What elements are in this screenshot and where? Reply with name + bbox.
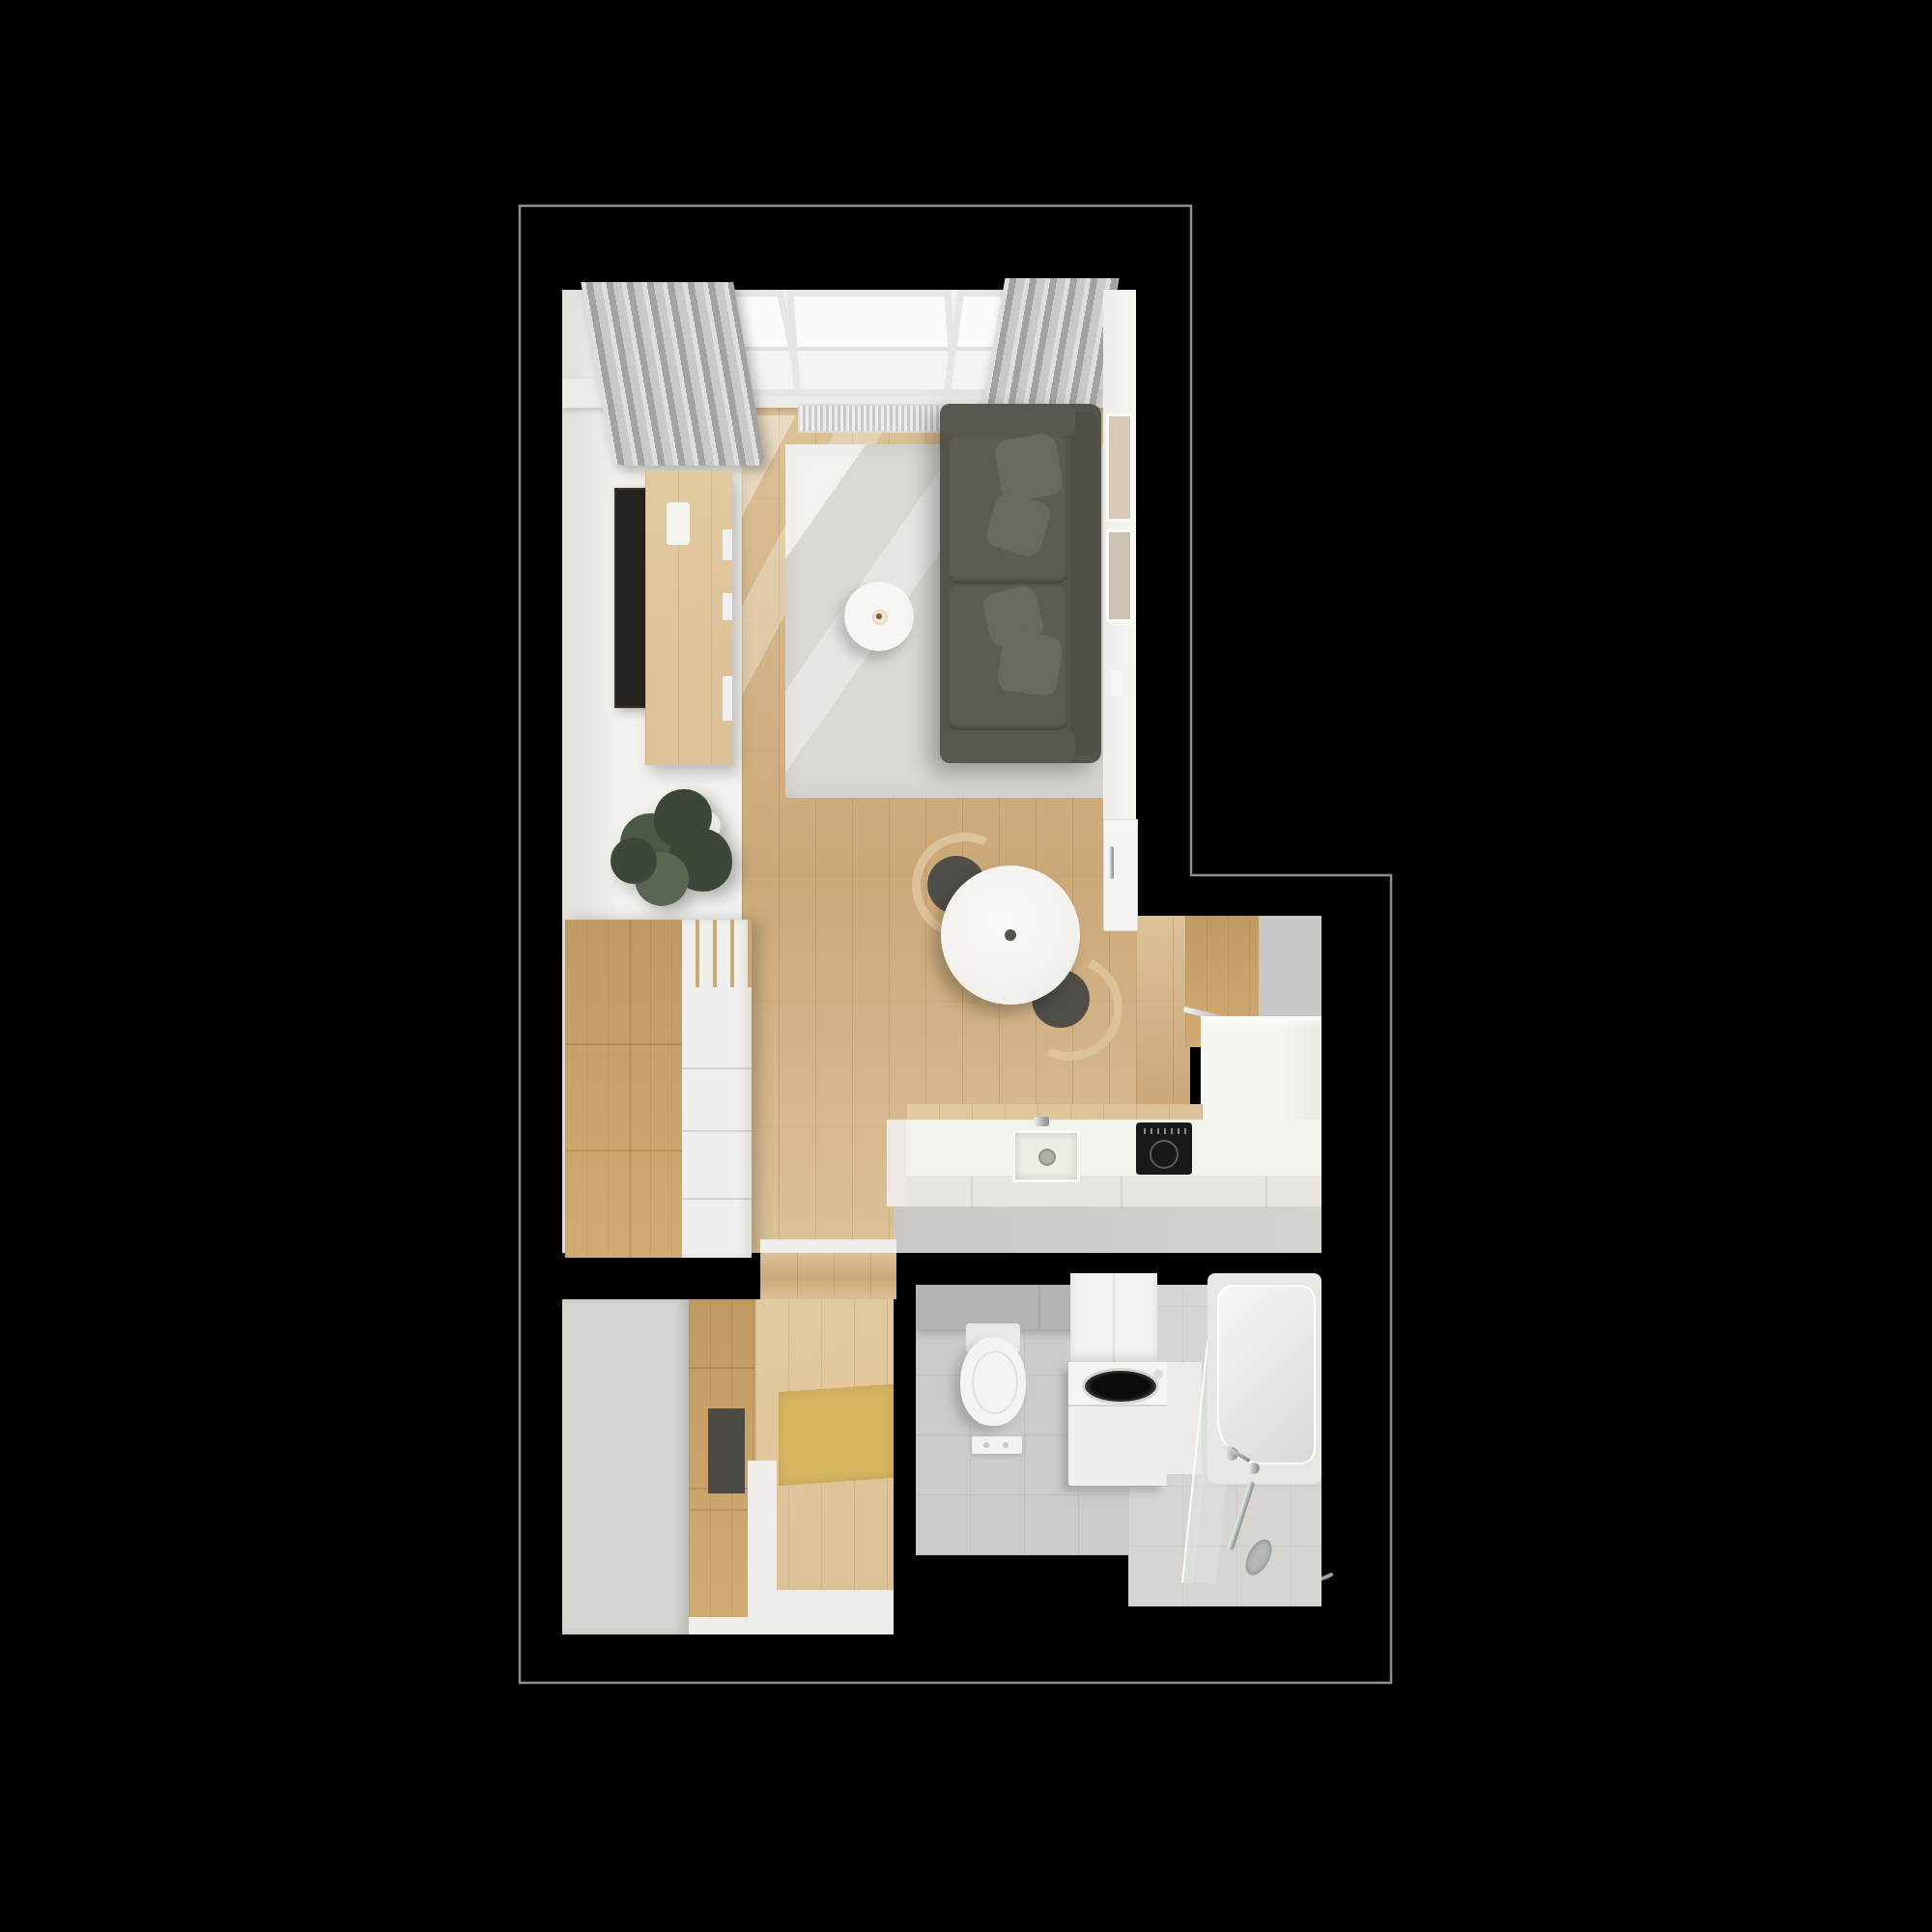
sink-drain xyxy=(1038,1149,1056,1166)
flush-plate xyxy=(972,1436,1022,1454)
door-handle xyxy=(1109,846,1114,879)
washer-drum-opening xyxy=(1082,1368,1159,1405)
sofa-arm-bottom xyxy=(940,730,1075,763)
dining-table-centerpiece xyxy=(1005,929,1016,941)
doormat xyxy=(779,1384,894,1486)
radiator xyxy=(798,404,956,433)
passage-floor xyxy=(760,1253,896,1299)
wardrobe-seam-1 xyxy=(689,1367,755,1369)
flush-button-2 xyxy=(1003,1442,1009,1448)
washer-front-seam xyxy=(1068,1405,1167,1406)
chest-seam-h1 xyxy=(565,1043,682,1045)
bathtub-basin xyxy=(1217,1285,1316,1464)
curtain-left xyxy=(581,282,766,466)
sofa xyxy=(940,404,1101,763)
chest-cubbies xyxy=(682,920,752,987)
induction-cooktop xyxy=(1136,1122,1192,1175)
chest-drawer-line-2 xyxy=(682,1130,752,1132)
chest-drawer-line-3 xyxy=(682,1198,752,1200)
sideboard-decor-vase xyxy=(667,502,690,545)
flush-button-1 xyxy=(983,1442,989,1448)
sofa-arm-top xyxy=(940,404,1075,437)
wall-art-1 xyxy=(1106,413,1133,522)
kitchen-sink xyxy=(1012,1130,1080,1182)
light-switch xyxy=(1111,670,1122,696)
counter-worktop xyxy=(906,1120,1321,1176)
sideboard-open-shelf-1 xyxy=(723,529,732,560)
cooktop-burner-ring xyxy=(1150,1140,1179,1169)
counter-front-face xyxy=(906,1176,1321,1207)
sink-faucet xyxy=(1034,1117,1049,1126)
cooktop-controls xyxy=(1144,1128,1186,1134)
apartment-render-canvas xyxy=(0,0,1932,1932)
toilet xyxy=(958,1321,1028,1428)
toilet-bowl xyxy=(960,1337,1026,1426)
chest-seam-h2 xyxy=(565,1150,682,1151)
bathroom-storage-cabinet xyxy=(1070,1273,1157,1362)
potted-plant xyxy=(611,784,744,918)
sofa-pillow-4 xyxy=(996,630,1064,697)
counter-seam-2 xyxy=(1121,1176,1122,1207)
sideboard-open-shelf-2 xyxy=(723,593,732,620)
roof-window-middle xyxy=(786,290,958,396)
cabinet-door-seam xyxy=(1113,1273,1115,1362)
coffee-cup xyxy=(872,610,888,625)
threshold-horizontal xyxy=(748,1590,894,1634)
coffee xyxy=(876,613,882,619)
chest-seam-v xyxy=(630,920,632,1258)
wardrobe-bench-niche xyxy=(708,1408,745,1493)
bath-faucet-handle-2 xyxy=(1248,1463,1260,1474)
chest-drawer-line-1 xyxy=(682,1067,752,1069)
hallway-closet xyxy=(562,1299,689,1634)
plant-leaf-5 xyxy=(611,838,657,884)
sideboard-open-shelf-3 xyxy=(723,676,732,721)
counter-seam-1 xyxy=(971,1176,973,1207)
wardrobe-seam-3 xyxy=(689,1509,755,1511)
counter-seam-3 xyxy=(1265,1176,1267,1207)
counter-backsplash-strip xyxy=(906,1104,1203,1120)
tile-seam xyxy=(1038,1285,1040,1329)
wall-art-2 xyxy=(1106,529,1133,622)
sofa-backrest xyxy=(1070,412,1097,755)
kitchen-floor-strip xyxy=(894,1207,1321,1253)
toilet-seat-line xyxy=(972,1350,1018,1414)
washing-machine xyxy=(1068,1362,1167,1486)
washer-knob xyxy=(1153,1370,1163,1379)
counter-end-panel xyxy=(887,1120,906,1207)
